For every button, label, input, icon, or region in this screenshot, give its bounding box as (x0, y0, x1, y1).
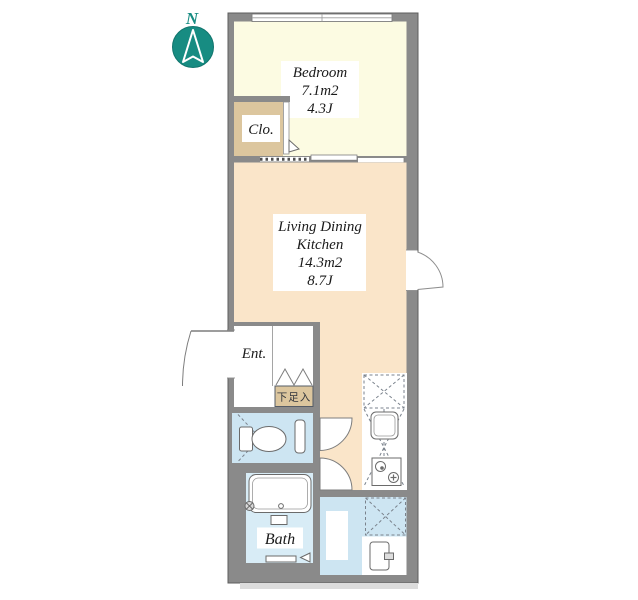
ldk-name-line2: Kitchen (296, 237, 344, 253)
ldk-area-tatami: 8.7J (307, 273, 334, 289)
entrance-door-opening (227, 330, 235, 378)
bath-faucet-icon (245, 502, 254, 511)
ldk-door-opening (406, 250, 418, 291)
entrance-door (183, 330, 236, 386)
stove-icon (372, 458, 401, 486)
bedroom-name: Bedroom (293, 65, 348, 81)
ldk-door-swing-icon (418, 252, 444, 290)
bedroom-area-m2: 7.1m2 (301, 83, 339, 99)
compass: N (173, 9, 214, 68)
floor-plan-drawing: N Bedroom 7.1m2 4.3J Clo. (0, 0, 638, 600)
ldk-name-line1: Living Dining (277, 219, 362, 235)
utility-corner (362, 537, 407, 576)
compass-north-label: N (185, 9, 199, 28)
floor-plan-page: N Bedroom 7.1m2 4.3J Clo. (0, 0, 638, 600)
shoe-cabinet-label: 下足入 (277, 392, 312, 404)
sliding-door-panel-1 (311, 155, 357, 160)
closet-top-wall (234, 96, 290, 102)
bathtub-icon (249, 475, 311, 513)
sliding-door-panel-2 (358, 158, 405, 163)
bath-step (271, 516, 287, 525)
toilet-tank (240, 427, 253, 451)
closet-label: Clo. (248, 122, 273, 138)
entrance-label: Ent. (241, 346, 267, 362)
bath-label: Bath (265, 531, 295, 548)
ldk-area-m2: 14.3m2 (298, 255, 343, 271)
entrance-door-swing-icon (183, 331, 192, 386)
washroom-vanity (326, 511, 348, 560)
room-entrance: Ent. 下足入 (183, 326, 314, 407)
plan-shadow (240, 583, 418, 589)
ldk-exterior-door (406, 250, 443, 291)
closet-door (284, 102, 290, 154)
bath-threshold (266, 556, 296, 562)
ldk-floor-lower (320, 322, 407, 373)
toilet-counter (295, 420, 305, 453)
toilet-bowl-icon (252, 427, 286, 452)
bedroom-area-tatami: 4.3J (307, 101, 334, 117)
room-bath: Bath (245, 473, 313, 563)
window-icon (252, 14, 392, 22)
room-toilet (232, 413, 313, 463)
room-closet: Clo. (234, 96, 299, 156)
utility-door-handle-icon (385, 553, 394, 560)
kitchen-area (362, 373, 407, 490)
